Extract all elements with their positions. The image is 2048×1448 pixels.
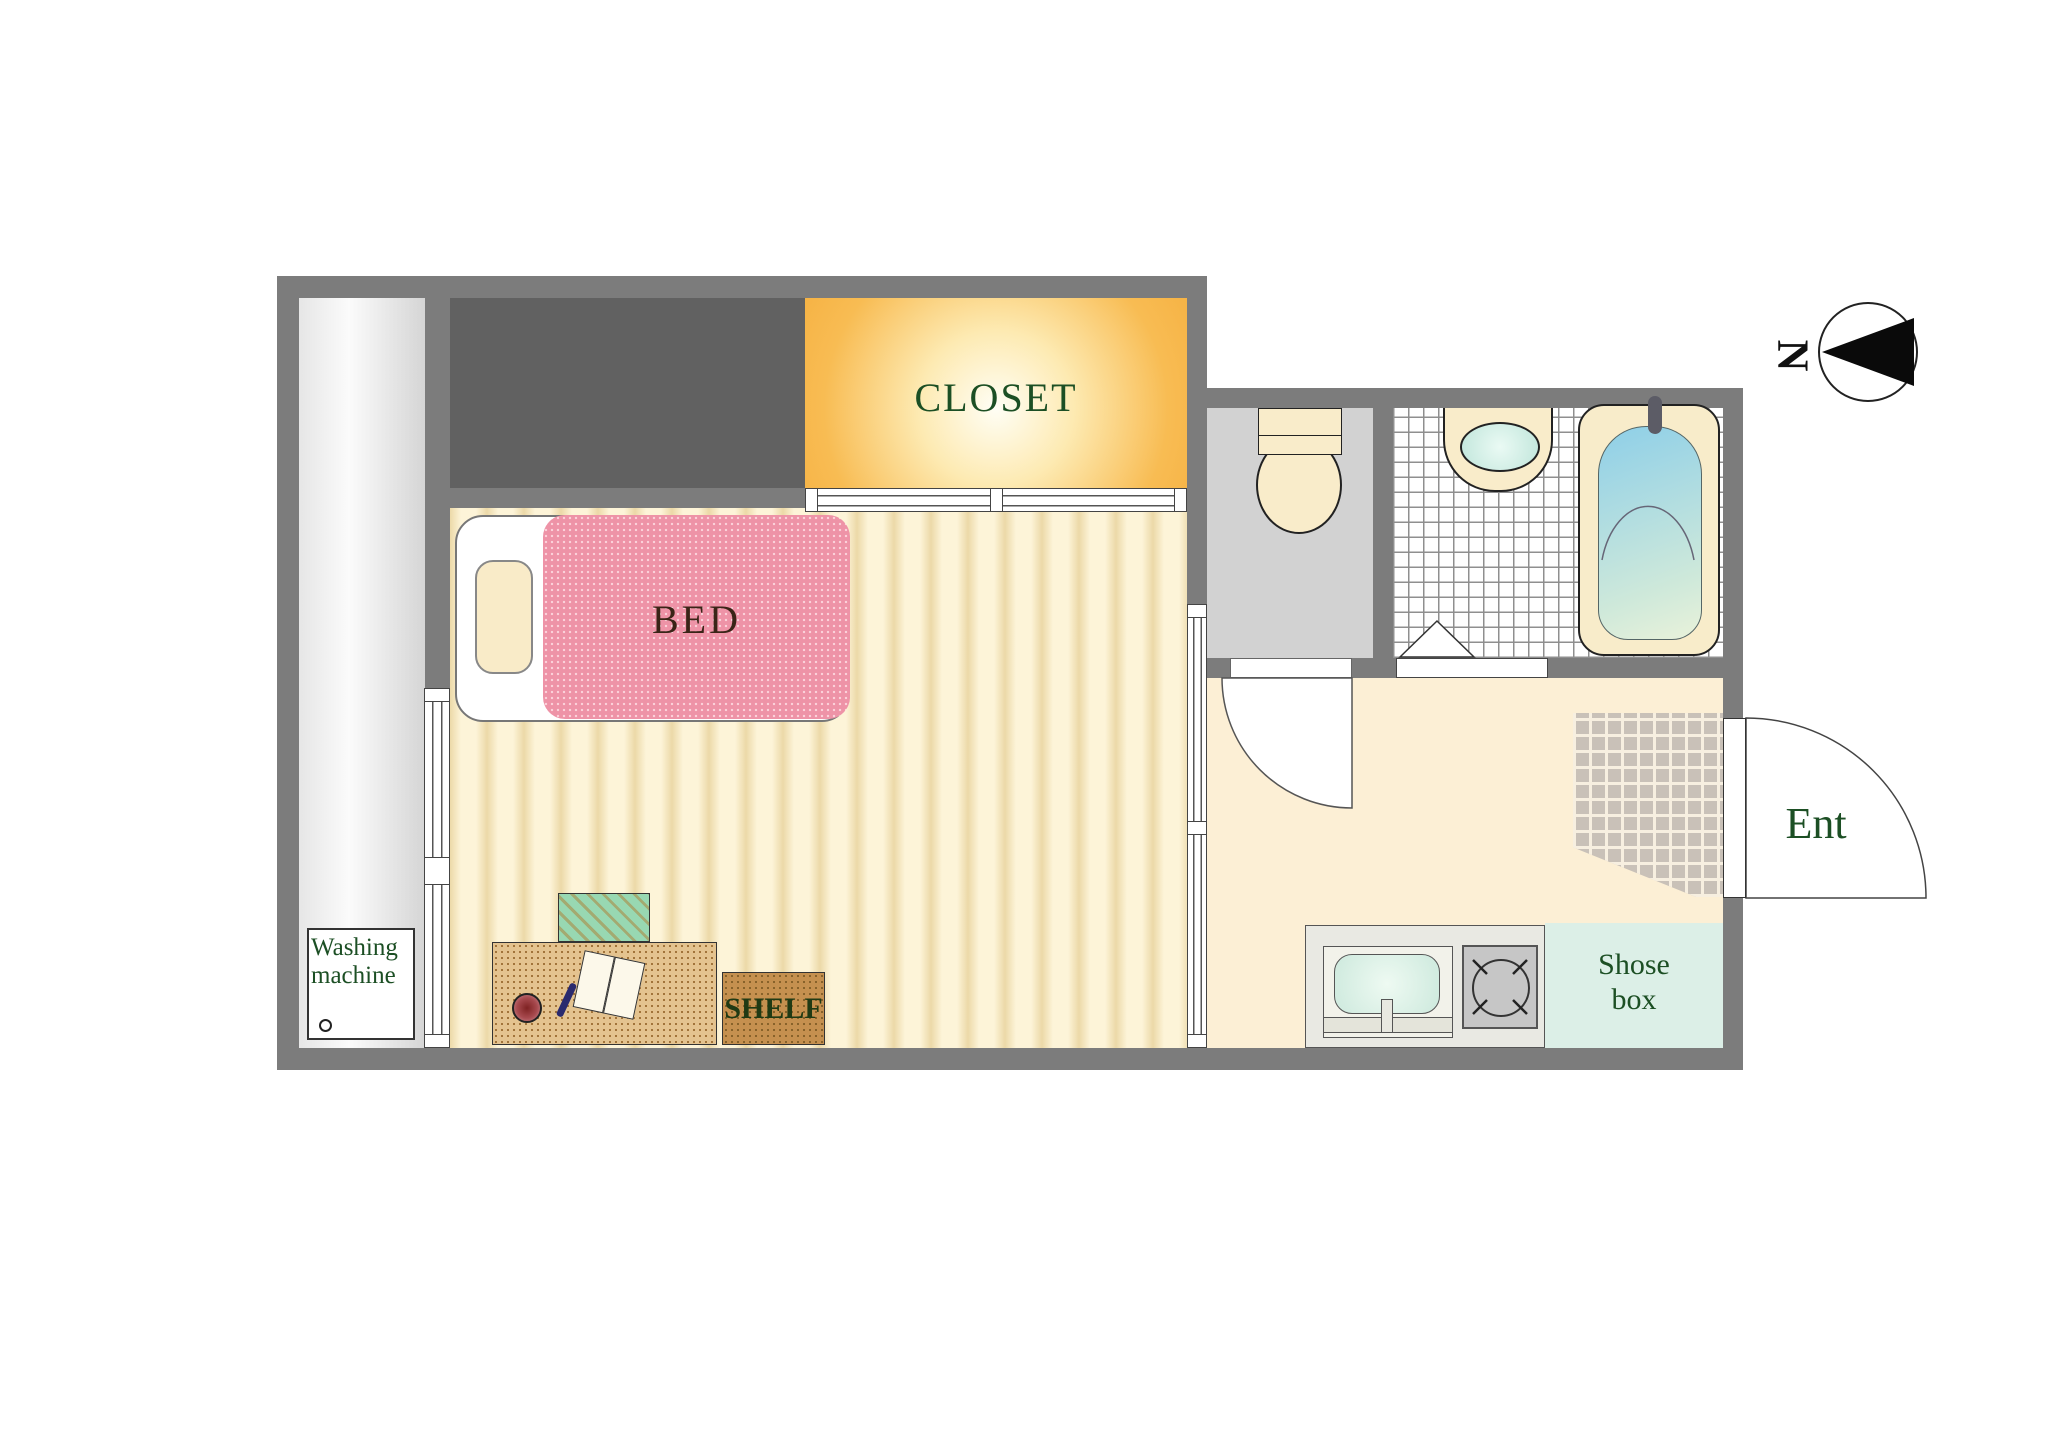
floor-plan: CLOSET BED SHELF Washing machine Shose b… bbox=[0, 0, 2048, 1448]
sink-basin bbox=[1460, 422, 1540, 472]
open-book bbox=[573, 950, 646, 1020]
toilet-tank bbox=[1258, 408, 1342, 455]
bathtub-faucet bbox=[1648, 396, 1662, 434]
compass-north-label: N bbox=[1768, 331, 1819, 381]
door-cap bbox=[990, 488, 1003, 512]
kitchen-faucet bbox=[1381, 999, 1393, 1033]
compass-arrow-icon bbox=[1822, 318, 1914, 386]
pillow bbox=[475, 560, 533, 674]
stove bbox=[1462, 945, 1538, 1029]
window-cap bbox=[424, 857, 450, 885]
bathtub bbox=[1578, 404, 1720, 656]
door-cap bbox=[1187, 604, 1207, 618]
washing-machine-drain-icon bbox=[319, 1019, 332, 1032]
cup bbox=[512, 993, 542, 1023]
closet-label: CLOSET bbox=[805, 374, 1187, 421]
bed-label: BED bbox=[543, 596, 850, 643]
storage-area bbox=[450, 298, 805, 488]
toilet-door-frame bbox=[1230, 658, 1352, 678]
kitchen-sink-unit bbox=[1323, 946, 1453, 1038]
shoe-box-label: Shose box bbox=[1574, 948, 1694, 1017]
door-cap bbox=[1174, 488, 1187, 512]
washing-machine-label: Washing machine bbox=[309, 934, 415, 989]
bathroom-threshold bbox=[1396, 658, 1548, 678]
left-wall-window bbox=[424, 688, 450, 1048]
entrance-door-leaf bbox=[1723, 718, 1746, 898]
entrance-label: Ent bbox=[1756, 798, 1876, 849]
room-partition-sliding-door bbox=[1187, 604, 1207, 1048]
window-cap bbox=[424, 1034, 450, 1048]
closet-sliding-doors bbox=[805, 488, 1187, 512]
door-cap bbox=[805, 488, 818, 512]
toilet-tank-line bbox=[1259, 435, 1341, 436]
floor-cushion bbox=[558, 893, 650, 942]
bathtub-water bbox=[1598, 426, 1702, 640]
stove-burner bbox=[1472, 959, 1530, 1017]
shelf-label: SHELF bbox=[718, 992, 829, 1026]
door-cap bbox=[1187, 1034, 1207, 1048]
window-cap bbox=[424, 688, 450, 702]
door-cap bbox=[1187, 821, 1207, 835]
